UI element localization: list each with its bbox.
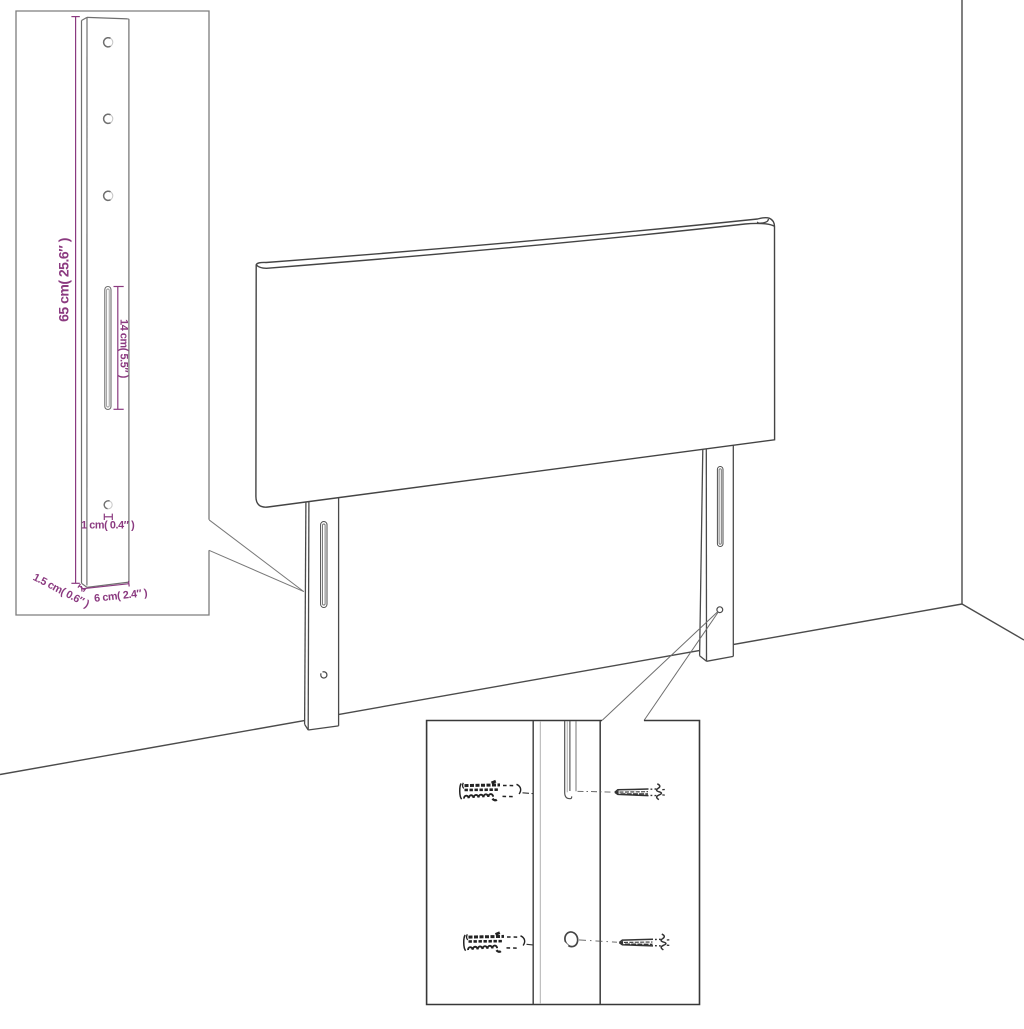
svg-text:65 cm( 25.6″ ): 65 cm( 25.6″ ) (56, 238, 72, 322)
svg-text:1 cm( 0.4″ ): 1 cm( 0.4″ ) (81, 520, 135, 532)
svg-text:14 cm( 5.5″ ): 14 cm( 5.5″ ) (118, 319, 130, 379)
